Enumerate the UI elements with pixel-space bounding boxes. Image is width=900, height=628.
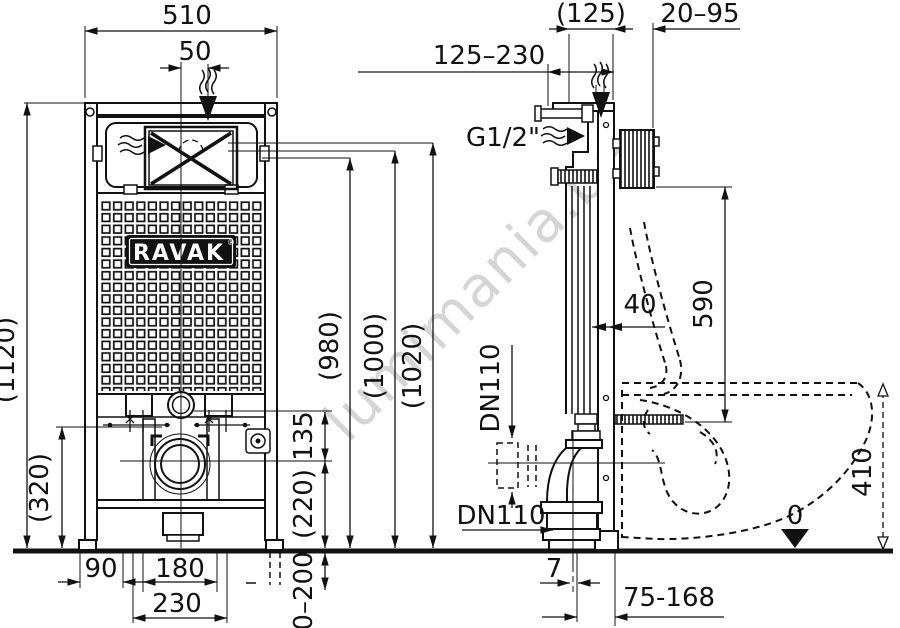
dim-supply-to-seat: 590 [656, 187, 732, 422]
svg-text:(1000): (1000) [360, 313, 390, 399]
svg-text:DN110: DN110 [456, 501, 545, 531]
logo-text: RAVAK [133, 241, 225, 266]
dim-edge-to-leg: 90 [58, 553, 145, 588]
svg-text:230: 230 [152, 589, 202, 619]
dim-leg-spacing: 180 [143, 553, 217, 592]
wc-bowl-dashed [622, 383, 872, 539]
svg-text:(980): (980) [315, 311, 345, 381]
corner-screw-icon [268, 108, 276, 116]
mounting-rod [615, 415, 683, 424]
svg-text:7: 7 [546, 554, 563, 584]
svg-text:(220): (220) [289, 469, 319, 539]
corner-screw-icon [86, 108, 94, 116]
dim-bowl-height: 410 [848, 384, 888, 549]
svg-text:(320): (320) [25, 453, 55, 523]
svg-text:90: 90 [84, 554, 117, 584]
wall-bracket [613, 130, 659, 188]
svg-text:40: 40 [623, 290, 656, 320]
dim-drain-vertical: DN110 [476, 343, 512, 508]
svg-text:(1120): (1120) [0, 317, 21, 403]
dim-outlet-offset: 7 [540, 553, 600, 622]
floor-level-marker: 0 [781, 501, 809, 548]
svg-text:135: 135 [289, 411, 319, 461]
svg-text:50: 50 [178, 37, 211, 67]
dim-level-1000: (1000) [360, 151, 395, 548]
svg-text:590: 590 [689, 279, 719, 329]
dim-inlet-offset: 50 [160, 37, 229, 68]
svg-text:0–200: 0–200 [289, 551, 319, 628]
dim-level-1020: (1020) [398, 143, 433, 548]
svg-text:75-168: 75-168 [623, 583, 715, 613]
adjustable-foot-dashed [246, 552, 280, 585]
svg-text:180: 180 [155, 554, 205, 584]
svg-text:125–230: 125–230 [433, 41, 545, 71]
mounting-grid-panel [101, 201, 263, 391]
drain-socket [150, 434, 210, 494]
technical-drawing-ravak-wc-frame: lumimania.be [0, 0, 900, 628]
dim-drain-to-floor: (220) [289, 461, 325, 548]
dim-drain-horizontal: DN110 [456, 501, 553, 531]
svg-text:410: 410 [848, 447, 878, 497]
svg-text:DN110: DN110 [476, 343, 506, 432]
svg-text:510: 510 [162, 1, 212, 31]
dim-depth: (125) [549, 0, 633, 103]
drawing-canvas: lumimania.be [0, 0, 900, 628]
svg-text:(125): (125) [556, 0, 626, 29]
dim-supply-reach: 125–230 [358, 41, 614, 106]
dim-flush-to-drain: 135 [289, 411, 325, 461]
front-view: RAVAK ® [0, 1, 433, 628]
svg-text:0: 0 [787, 501, 804, 531]
logo-registered-mark: ® [227, 238, 235, 247]
dim-height-lower: (320) [25, 427, 62, 548]
cistern-outlet [572, 414, 600, 440]
svg-text:20–95: 20–95 [660, 0, 739, 29]
dim-leg-adjust: 0–200 [289, 551, 325, 628]
dim-bracket-adjust: 20–95 [653, 0, 740, 128]
dim-level-980: (980) [315, 158, 350, 548]
svg-text:(1020): (1020) [398, 323, 428, 409]
drain-funnel [163, 513, 203, 541]
flush-bend-fitting [551, 168, 597, 185]
dim-supply-thread: G1/2" [466, 123, 540, 153]
dim-outlet-adjust: 75-168 [542, 553, 724, 626]
alt-drain-dashed [497, 443, 536, 488]
